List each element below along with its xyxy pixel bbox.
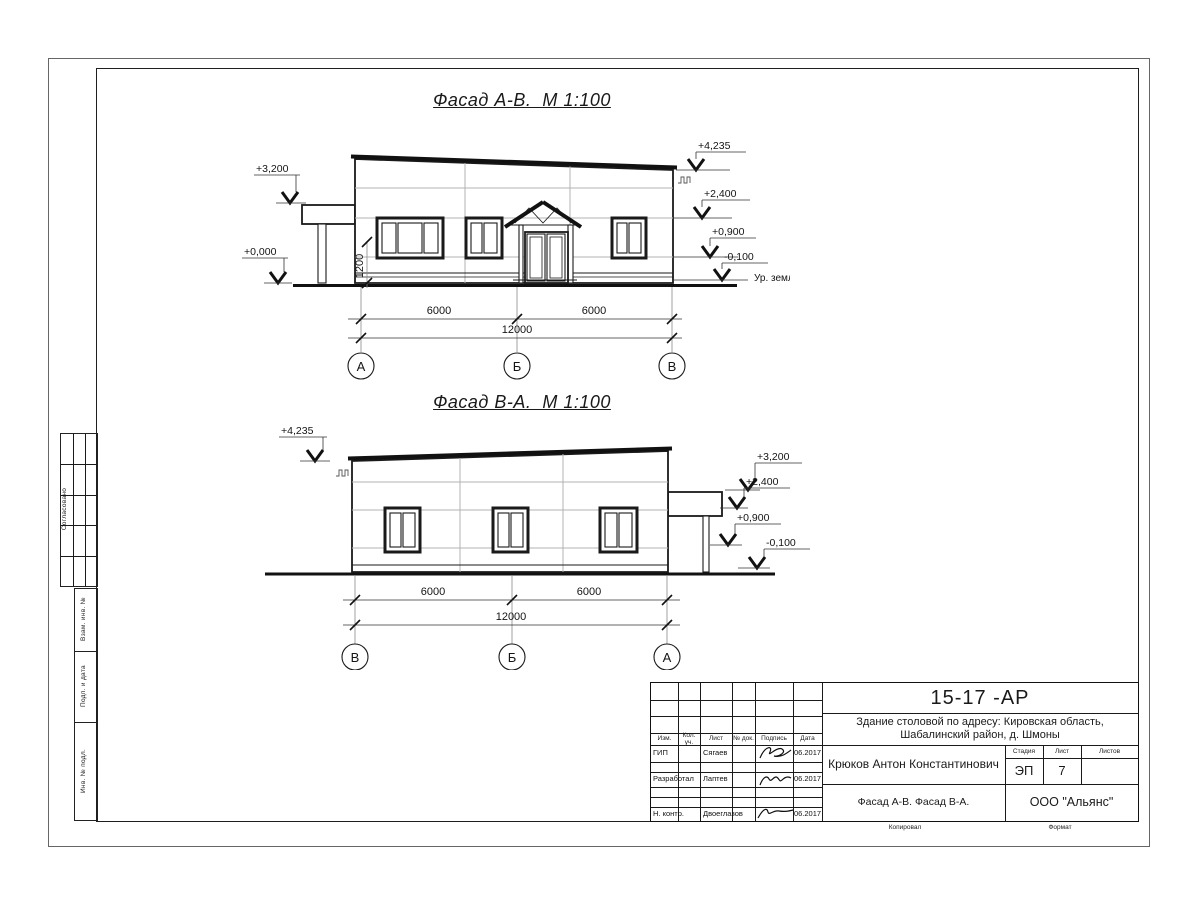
facade2-title: Фасад В-А. М 1:100 [392,392,652,413]
col-kol-uch: Кол. уч. [678,733,700,745]
elevation-label: -0,100 [724,251,754,263]
row-razrabotal-role: Разработал [653,772,699,787]
axis-a: А [663,650,672,665]
facade2-drawing: +4,235 +3,200 +2,400 +0,900 [230,425,820,670]
row-razrabotal-date: 06.2017 [793,772,822,787]
elevation-label: +3,200 [757,451,790,463]
col-data: Дата [793,733,822,745]
margin-label-inv-orig: Инв. № подл. [80,741,90,801]
title-block: Изм. Кол. уч. Лист № док. Подпись Дата Г… [650,682,1139,822]
margin-label-replace-inv: Взам. инв. № [80,589,90,649]
dim-12000: 12000 [502,324,533,336]
dim-12000: 12000 [496,611,527,623]
ground-level-label: Ур. земли [754,273,790,284]
elevation-label: +0,900 [737,512,770,524]
window-1 [385,508,420,552]
margin-label-approved: Согласовано [61,474,71,544]
axis-v: В [351,650,360,665]
dim-6000-left: 6000 [427,305,451,317]
elevation-label: +2,400 [746,476,779,488]
row-gip-name: Сягаев [703,745,753,762]
project-line2: Шабалинский район, д. Шмоны [900,729,1060,742]
format-label: Формат [1015,823,1105,833]
elevation-mark-top: +4,235 [279,425,330,461]
signature-razrabotal [757,769,793,789]
porch-canopy-right [668,492,722,572]
elevation-label: +0,900 [712,226,745,238]
window-triple [377,218,443,258]
col-izm: Изм. [651,733,678,745]
project-description: Здание столовой по адресу: Кировская обл… [822,713,1138,745]
drawing-sheet: Фасад А-В. М 1:100 Фасад В-А. М 1:100 [0,0,1200,900]
dim-6000-right: 6000 [577,586,601,598]
gutter-symbol [336,470,348,476]
elevation-label: +2,400 [704,188,737,200]
project-line1: Здание столовой по адресу: Кировская обл… [856,716,1104,729]
axis-b: Б [513,359,522,374]
col-list: Лист [700,733,732,745]
elevation-mark-top: +4,235 [676,140,746,170]
col-n-dok: № док. [732,733,755,745]
signature-gip [757,743,793,763]
axis-marks: А Б В [348,353,685,379]
stage-label: Стадия [1005,745,1043,758]
elevation-mark-lintel: +2,400 [720,476,790,508]
sheets-label: Листов [1081,745,1138,758]
porch-canopy-left [302,205,355,283]
axis-b: Б [508,650,517,665]
window-2 [493,508,528,552]
window-3 [600,508,637,552]
axis-v: В [668,359,677,374]
elevation-mark-canopy: +3,200 [254,163,306,203]
dim-6000-left: 6000 [421,586,445,598]
elevation-label: +0,000 [244,246,277,258]
sheets-total [1081,758,1138,784]
row-nkontr-date: 06.2017 [793,807,822,821]
elevation-label: +3,200 [256,163,289,175]
axis-a: А [357,359,366,374]
elevation-mark-zero: +0,000 [242,246,292,283]
dimensions: 6000 6000 12000 [343,576,680,644]
client-name: Крюков Антон Константинович [822,745,1005,784]
copied-label: Копировал [860,823,950,833]
sheet-title: Фасад А-В. Фасад В-А. [822,784,1005,821]
row-nkontr-name: Двоеглазов [703,807,755,821]
dim-6000-right: 6000 [582,305,606,317]
facade1-title: Фасад А-В. М 1:100 [392,90,652,111]
elevation-mark-ground: -0,100 [738,537,810,568]
row-nkontr-role: Н. контр. [653,807,699,821]
row-gip-role: ГИП [653,745,697,762]
axis-marks: В Б А [342,644,680,670]
gutter-symbol [678,177,690,183]
signature-nkontr [755,803,795,823]
dimensions: 6000 6000 12000 [348,287,682,352]
window-double-right [612,218,646,258]
facade1-drawing: +4,235 +2,400 +0,900 -0,100 Ур. зе [230,130,790,390]
elevation-label: +4,235 [281,425,314,437]
elevation-label: +4,235 [698,140,731,152]
elevation-mark-lintel: +2,400 [674,188,750,218]
window-double-left [466,218,502,258]
elevation-label: -0,100 [766,537,796,549]
row-razrabotal-name: Лаптев [703,772,753,787]
row-gip-date: 06.2017 [793,745,822,762]
stage-value: ЭП [1005,758,1043,784]
elevation-mark-ground: -0,100 Ур. земли [674,251,790,284]
doc-number: 15-17 -АР [822,683,1138,713]
sheet-label: Лист [1043,745,1081,758]
margin-label-sign-date: Подп. и дата [80,656,90,716]
dim-1200: 1200 [354,254,366,278]
company-name: ООО "Альянс" [1005,784,1138,821]
sheet-number: 7 [1043,758,1081,784]
